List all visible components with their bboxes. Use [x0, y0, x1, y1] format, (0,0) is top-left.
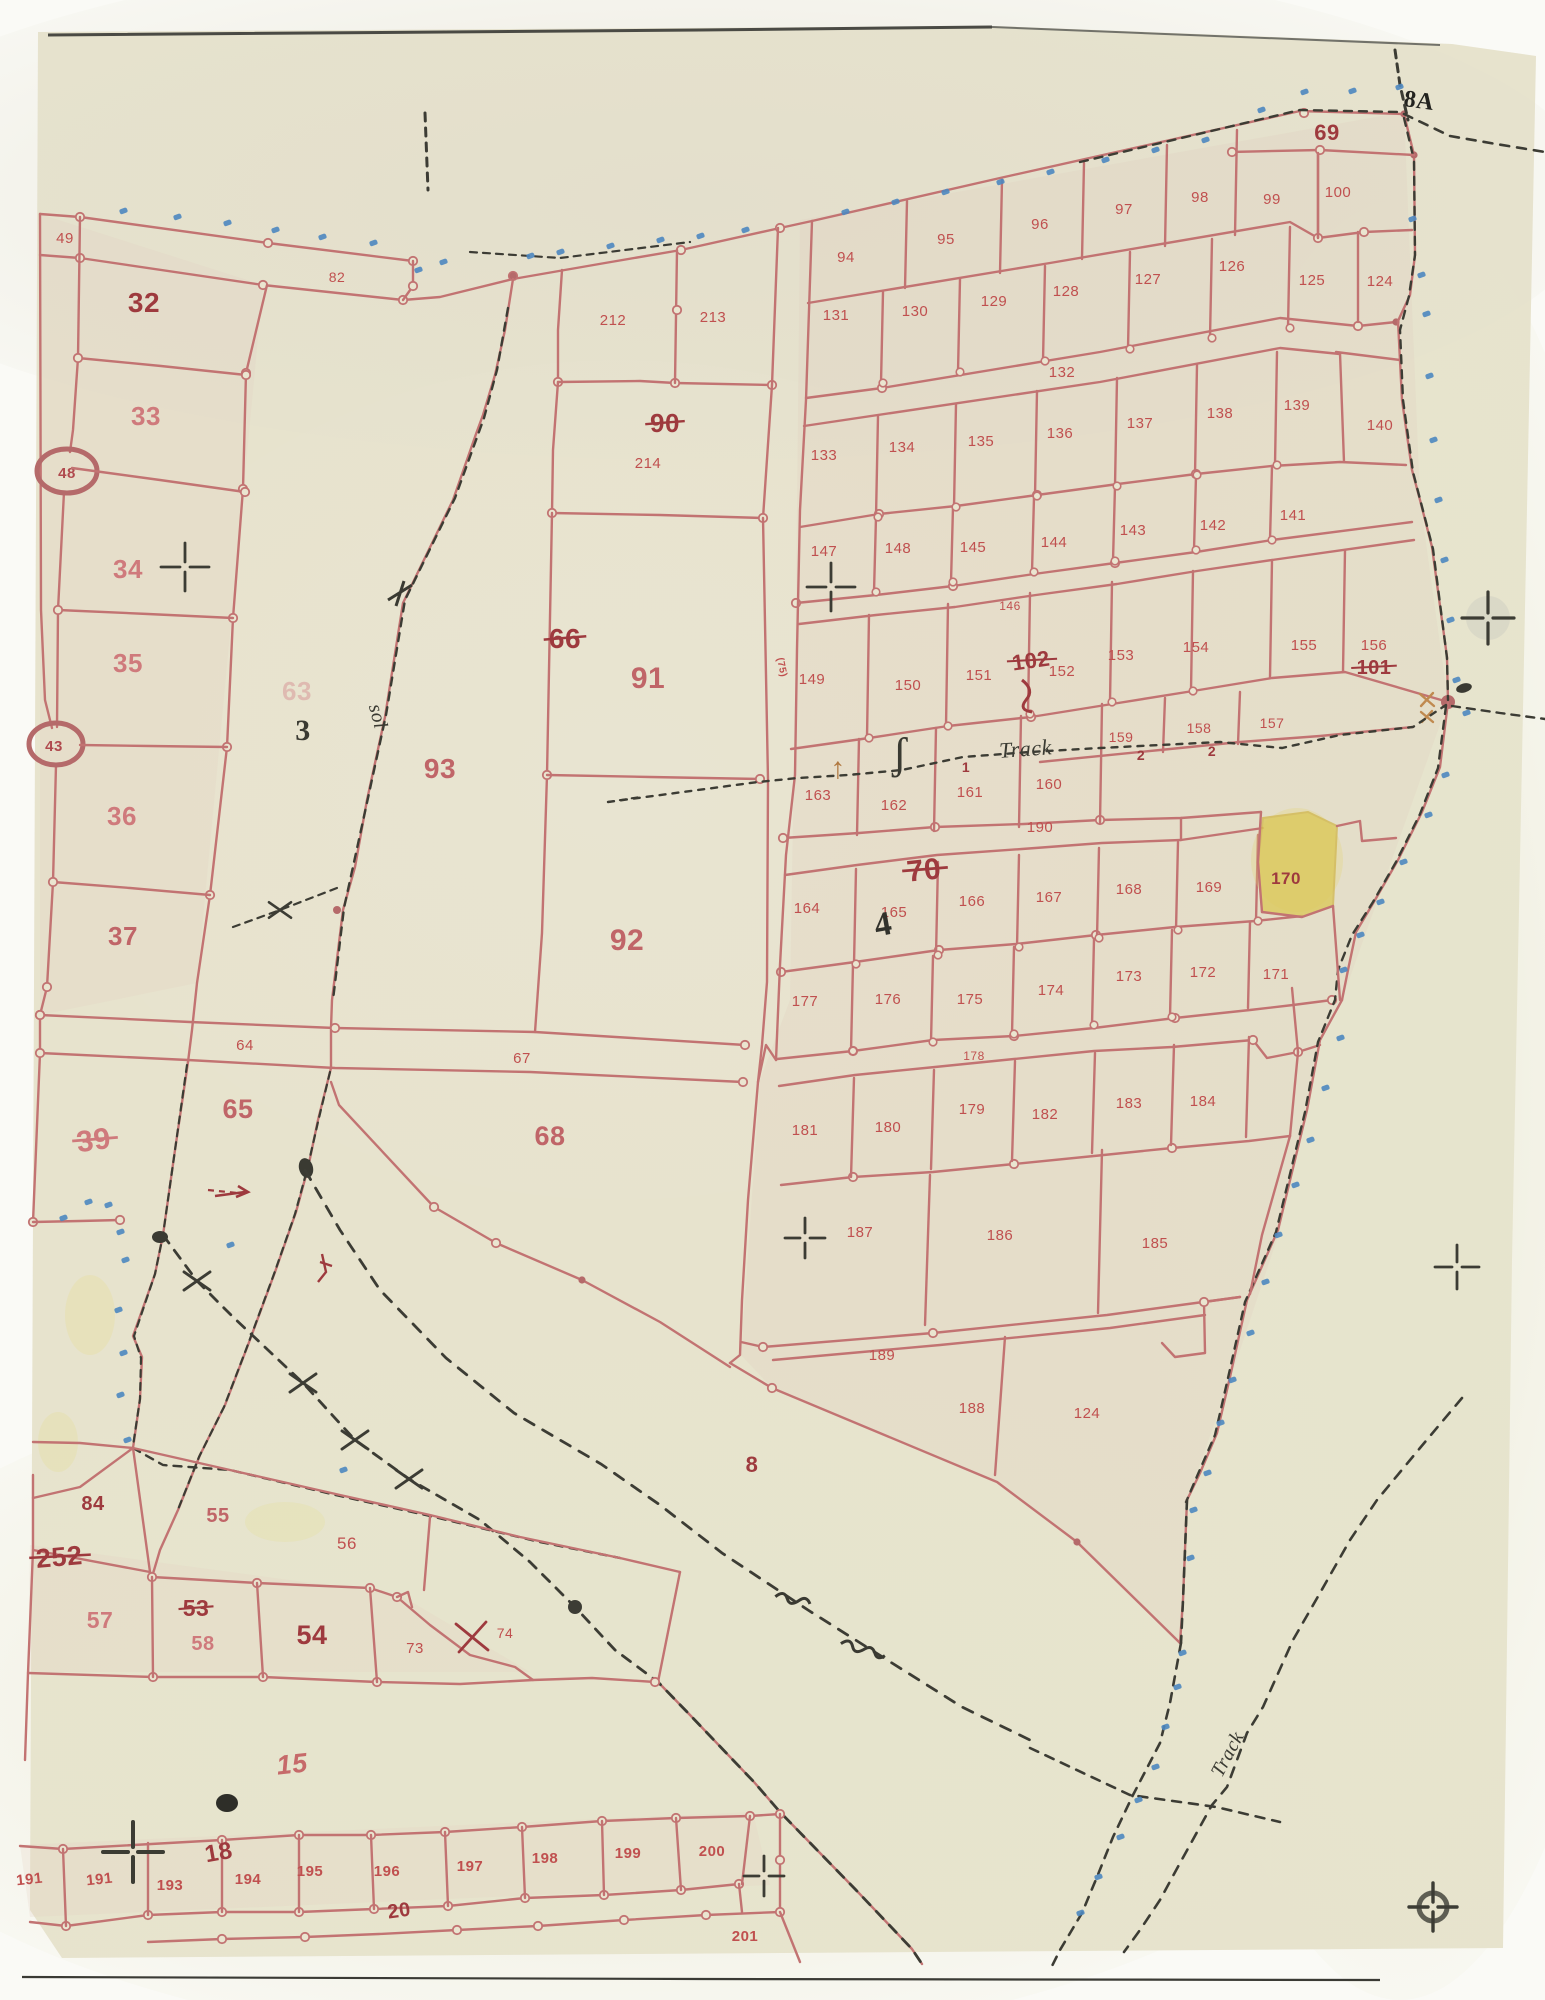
svg-text:3: 3	[295, 714, 311, 747]
svg-text:94: 94	[837, 249, 855, 266]
svg-text:58: 58	[191, 1633, 214, 1655]
svg-text:126: 126	[1219, 258, 1246, 275]
svg-text:49: 49	[56, 230, 74, 247]
svg-text:155: 155	[1291, 637, 1318, 654]
svg-text:162: 162	[881, 797, 908, 814]
svg-text:191: 191	[85, 1870, 113, 1890]
svg-text:179: 179	[959, 1101, 986, 1118]
svg-text:146: 146	[999, 599, 1021, 613]
svg-text:133: 133	[811, 447, 838, 464]
svg-text:92: 92	[610, 924, 644, 957]
svg-text:175: 175	[957, 991, 984, 1008]
svg-text:181: 181	[792, 1122, 819, 1139]
svg-text:148: 148	[885, 540, 912, 557]
svg-text:168: 168	[1116, 881, 1143, 898]
svg-text:131: 131	[823, 307, 850, 324]
svg-text:20: 20	[386, 1899, 412, 1924]
svg-text:1: 1	[962, 759, 970, 775]
svg-text:132: 132	[1049, 364, 1076, 381]
svg-text:186: 186	[987, 1227, 1014, 1244]
svg-text:149: 149	[799, 671, 826, 688]
svg-text:84: 84	[81, 1493, 105, 1515]
svg-text:18: 18	[203, 1837, 235, 1868]
svg-text:178: 178	[963, 1049, 985, 1063]
svg-text:134: 134	[889, 439, 916, 456]
svg-text:170: 170	[1271, 869, 1301, 888]
svg-text:8: 8	[746, 1452, 759, 1477]
svg-text:196: 196	[374, 1863, 401, 1880]
svg-text:68: 68	[534, 1121, 565, 1151]
svg-text:57: 57	[87, 1607, 114, 1633]
svg-text:124: 124	[1367, 273, 1394, 290]
svg-text:125: 125	[1299, 272, 1326, 289]
svg-text:37: 37	[108, 921, 138, 951]
svg-text:152: 152	[1049, 663, 1076, 680]
svg-text:195: 195	[297, 1863, 324, 1880]
svg-text:Track: Track	[998, 734, 1053, 763]
svg-text:129: 129	[981, 293, 1008, 310]
svg-text:2: 2	[1137, 747, 1145, 763]
svg-text:157: 157	[1260, 715, 1285, 731]
svg-text:36: 36	[107, 801, 137, 831]
svg-text:128: 128	[1053, 283, 1080, 300]
svg-text:144: 144	[1041, 534, 1068, 551]
svg-text:159: 159	[1109, 729, 1134, 745]
svg-text:64: 64	[236, 1037, 254, 1054]
svg-text:172: 172	[1190, 964, 1217, 981]
svg-text:160: 160	[1036, 776, 1063, 793]
svg-text:91: 91	[631, 662, 665, 695]
svg-text:184: 184	[1190, 1093, 1217, 1110]
svg-text:191: 191	[15, 1870, 43, 1890]
svg-text:190: 190	[1027, 819, 1054, 836]
svg-text:141: 141	[1280, 507, 1307, 524]
svg-text:143: 143	[1120, 522, 1147, 539]
svg-text:193: 193	[157, 1877, 184, 1894]
svg-text:63: 63	[282, 676, 312, 706]
svg-text:164: 164	[794, 900, 821, 917]
svg-text:214: 214	[635, 455, 662, 472]
svg-text:2: 2	[1208, 743, 1216, 759]
svg-text:139: 139	[1284, 397, 1311, 414]
svg-text:93: 93	[424, 753, 456, 784]
svg-text:158: 158	[1187, 720, 1212, 736]
svg-text:130: 130	[902, 303, 929, 320]
svg-text:161: 161	[957, 784, 984, 801]
svg-text:140: 140	[1367, 417, 1394, 434]
svg-text:194: 194	[235, 1871, 262, 1888]
svg-text:174: 174	[1038, 982, 1065, 999]
svg-text:100: 100	[1325, 184, 1352, 201]
svg-text:151: 151	[966, 667, 993, 684]
svg-text:82: 82	[329, 269, 346, 285]
svg-text:187: 187	[847, 1224, 874, 1241]
svg-text:32: 32	[128, 287, 160, 318]
svg-text:147: 147	[811, 543, 838, 560]
svg-text:180: 180	[875, 1119, 902, 1136]
svg-text:200: 200	[699, 1843, 726, 1860]
svg-text:65: 65	[222, 1094, 253, 1124]
svg-text:150: 150	[895, 677, 922, 694]
svg-text:177: 177	[792, 993, 819, 1010]
svg-text:137: 137	[1127, 415, 1154, 432]
svg-text:97: 97	[1115, 201, 1133, 218]
svg-text:183: 183	[1116, 1095, 1143, 1112]
svg-text:182: 182	[1032, 1106, 1059, 1123]
svg-text:167: 167	[1036, 889, 1063, 906]
svg-text:98: 98	[1191, 189, 1209, 206]
svg-text:171: 171	[1263, 966, 1290, 983]
svg-text:34: 34	[113, 554, 143, 584]
svg-text:127: 127	[1135, 271, 1162, 288]
svg-text:197: 197	[457, 1858, 484, 1875]
svg-text:↑: ↑	[830, 752, 846, 785]
svg-text:145: 145	[960, 539, 987, 556]
svg-text:188: 188	[959, 1400, 986, 1417]
svg-text:156: 156	[1361, 637, 1388, 654]
svg-text:176: 176	[875, 991, 902, 1008]
svg-text:166: 166	[959, 893, 986, 910]
svg-text:213: 213	[700, 309, 727, 326]
svg-text:163: 163	[805, 787, 832, 804]
svg-text:124: 124	[1074, 1405, 1101, 1422]
svg-text:212: 212	[600, 312, 627, 329]
svg-text:55: 55	[206, 1505, 229, 1527]
svg-text:99: 99	[1263, 191, 1281, 208]
svg-text:153: 153	[1108, 647, 1135, 664]
svg-text:67: 67	[513, 1050, 531, 1067]
svg-text:138: 138	[1207, 405, 1234, 422]
svg-text:15: 15	[275, 1747, 309, 1780]
svg-text:33: 33	[131, 401, 161, 431]
svg-text:74: 74	[497, 1625, 514, 1641]
svg-text:73: 73	[406, 1640, 424, 1657]
svg-text:56: 56	[337, 1534, 357, 1553]
svg-text:35: 35	[113, 648, 143, 678]
svg-text:69: 69	[1314, 120, 1339, 145]
svg-text:169: 169	[1196, 879, 1223, 896]
svg-text:96: 96	[1031, 216, 1049, 233]
svg-text:198: 198	[532, 1850, 559, 1867]
svg-text:185: 185	[1142, 1235, 1169, 1252]
svg-text:43: 43	[45, 738, 63, 755]
svg-text:135: 135	[968, 433, 995, 450]
svg-text:95: 95	[937, 231, 955, 248]
svg-text:189: 189	[869, 1347, 896, 1364]
svg-text:154: 154	[1183, 639, 1210, 656]
svg-text:201: 201	[732, 1928, 759, 1945]
svg-text:136: 136	[1047, 425, 1074, 442]
svg-text:199: 199	[615, 1845, 642, 1862]
svg-text:54: 54	[296, 1620, 327, 1650]
svg-text:142: 142	[1200, 517, 1227, 534]
svg-text:173: 173	[1116, 968, 1143, 985]
